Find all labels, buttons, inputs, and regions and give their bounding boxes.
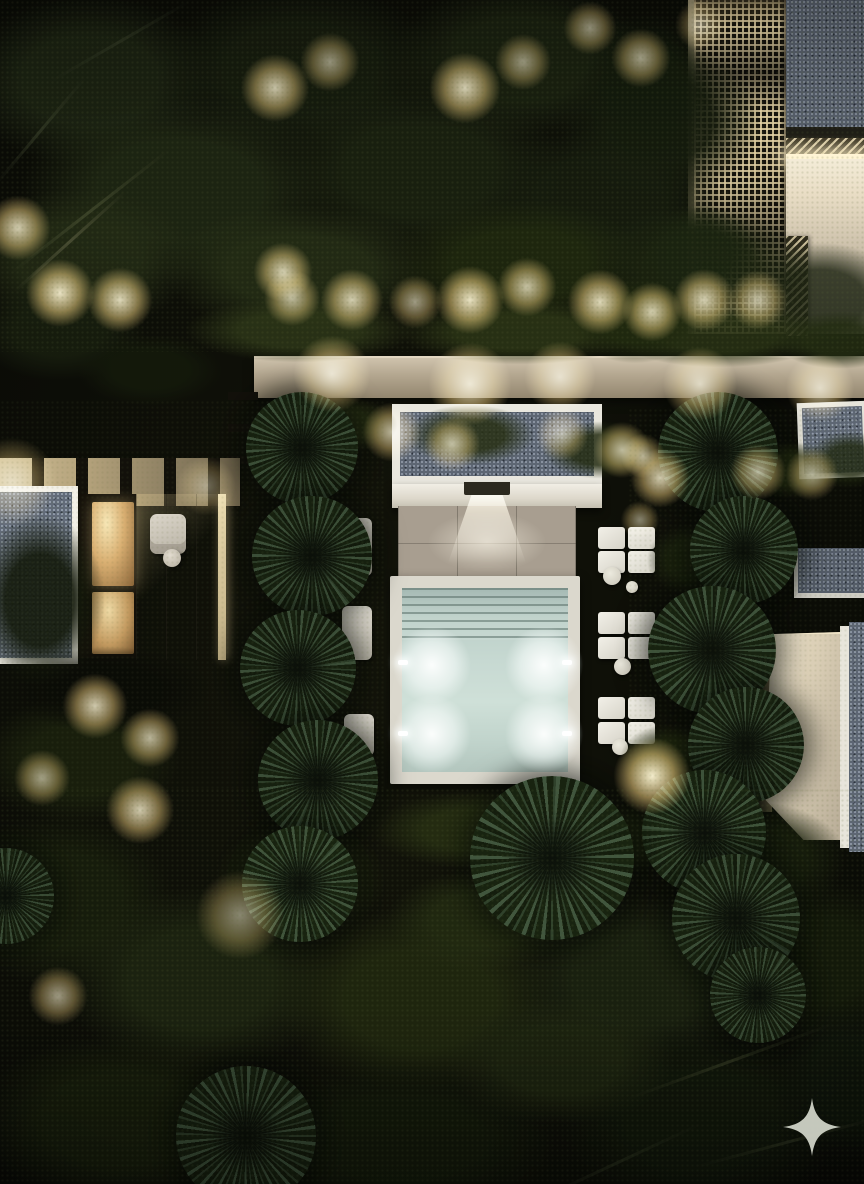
pool-underwater-light: [380, 682, 484, 786]
pool-underwater-light: [492, 682, 596, 786]
sparkle-icon-shape: [783, 1098, 841, 1156]
garden-light-glow: [601, 18, 681, 98]
garden-light-glow: [290, 22, 370, 102]
garden-light-glow: [243, 232, 323, 312]
garden-light-glow: [4, 740, 80, 816]
sparkle-icon: [783, 1098, 841, 1156]
garden-light-glow: [650, 334, 750, 434]
garden-light-glow: [166, 446, 246, 526]
garden-light-glow: [613, 426, 673, 486]
garden-light-glow: [720, 434, 796, 510]
light-glow-layer: [0, 0, 864, 1184]
garden-light-glow: [0, 422, 72, 542]
garden-light-glow: [424, 254, 516, 346]
garden-light-glow: [94, 764, 186, 856]
garden-light-glow: [584, 412, 660, 488]
garden-light-glow: [180, 855, 300, 975]
garden-light-glow: [485, 24, 561, 100]
garden-light-glow: [512, 329, 608, 425]
garden-light-glow: [600, 724, 704, 828]
garden-light-glow: [18, 956, 98, 1036]
pool-rim-light: [398, 660, 408, 665]
garden-light-glow: [666, 0, 734, 59]
garden-light-glow: [254, 260, 330, 336]
garden-light-glow: [487, 247, 567, 327]
garden-light-glow: [718, 260, 798, 340]
garden-light-glow: [774, 342, 864, 434]
garden-light-glow: [51, 662, 139, 750]
garden-light-glow: [776, 438, 848, 510]
garden-light-glow: [352, 392, 432, 472]
aerial-villa-render: [0, 0, 864, 1184]
garden-light-glow: [414, 406, 490, 482]
pool-rim-light: [562, 660, 572, 665]
garden-light-glow: [556, 258, 644, 346]
garden-light-glow: [76, 256, 164, 344]
garden-light-glow: [417, 40, 513, 136]
pool-underwater-light: [492, 613, 596, 717]
garden-light-glow: [110, 698, 190, 778]
garden-light-glow: [229, 42, 321, 134]
garden-light-glow: [554, 0, 626, 64]
pool-rim-light: [398, 731, 408, 736]
garden-light-glow: [614, 494, 666, 546]
garden-light-glow: [414, 328, 526, 440]
pool-rim-light: [562, 731, 572, 736]
garden-light-glow: [379, 266, 451, 338]
garden-light-glow: [310, 258, 394, 342]
garden-light-glow: [612, 272, 692, 352]
garden-light-glow: [620, 438, 700, 518]
garden-light-glow: [526, 398, 598, 470]
garden-light-glow: [14, 247, 106, 339]
garden-light-glow: [662, 258, 746, 342]
garden-light-glow: [0, 184, 62, 272]
garden-light-glow: [280, 322, 384, 426]
pool-underwater-light: [380, 613, 484, 717]
